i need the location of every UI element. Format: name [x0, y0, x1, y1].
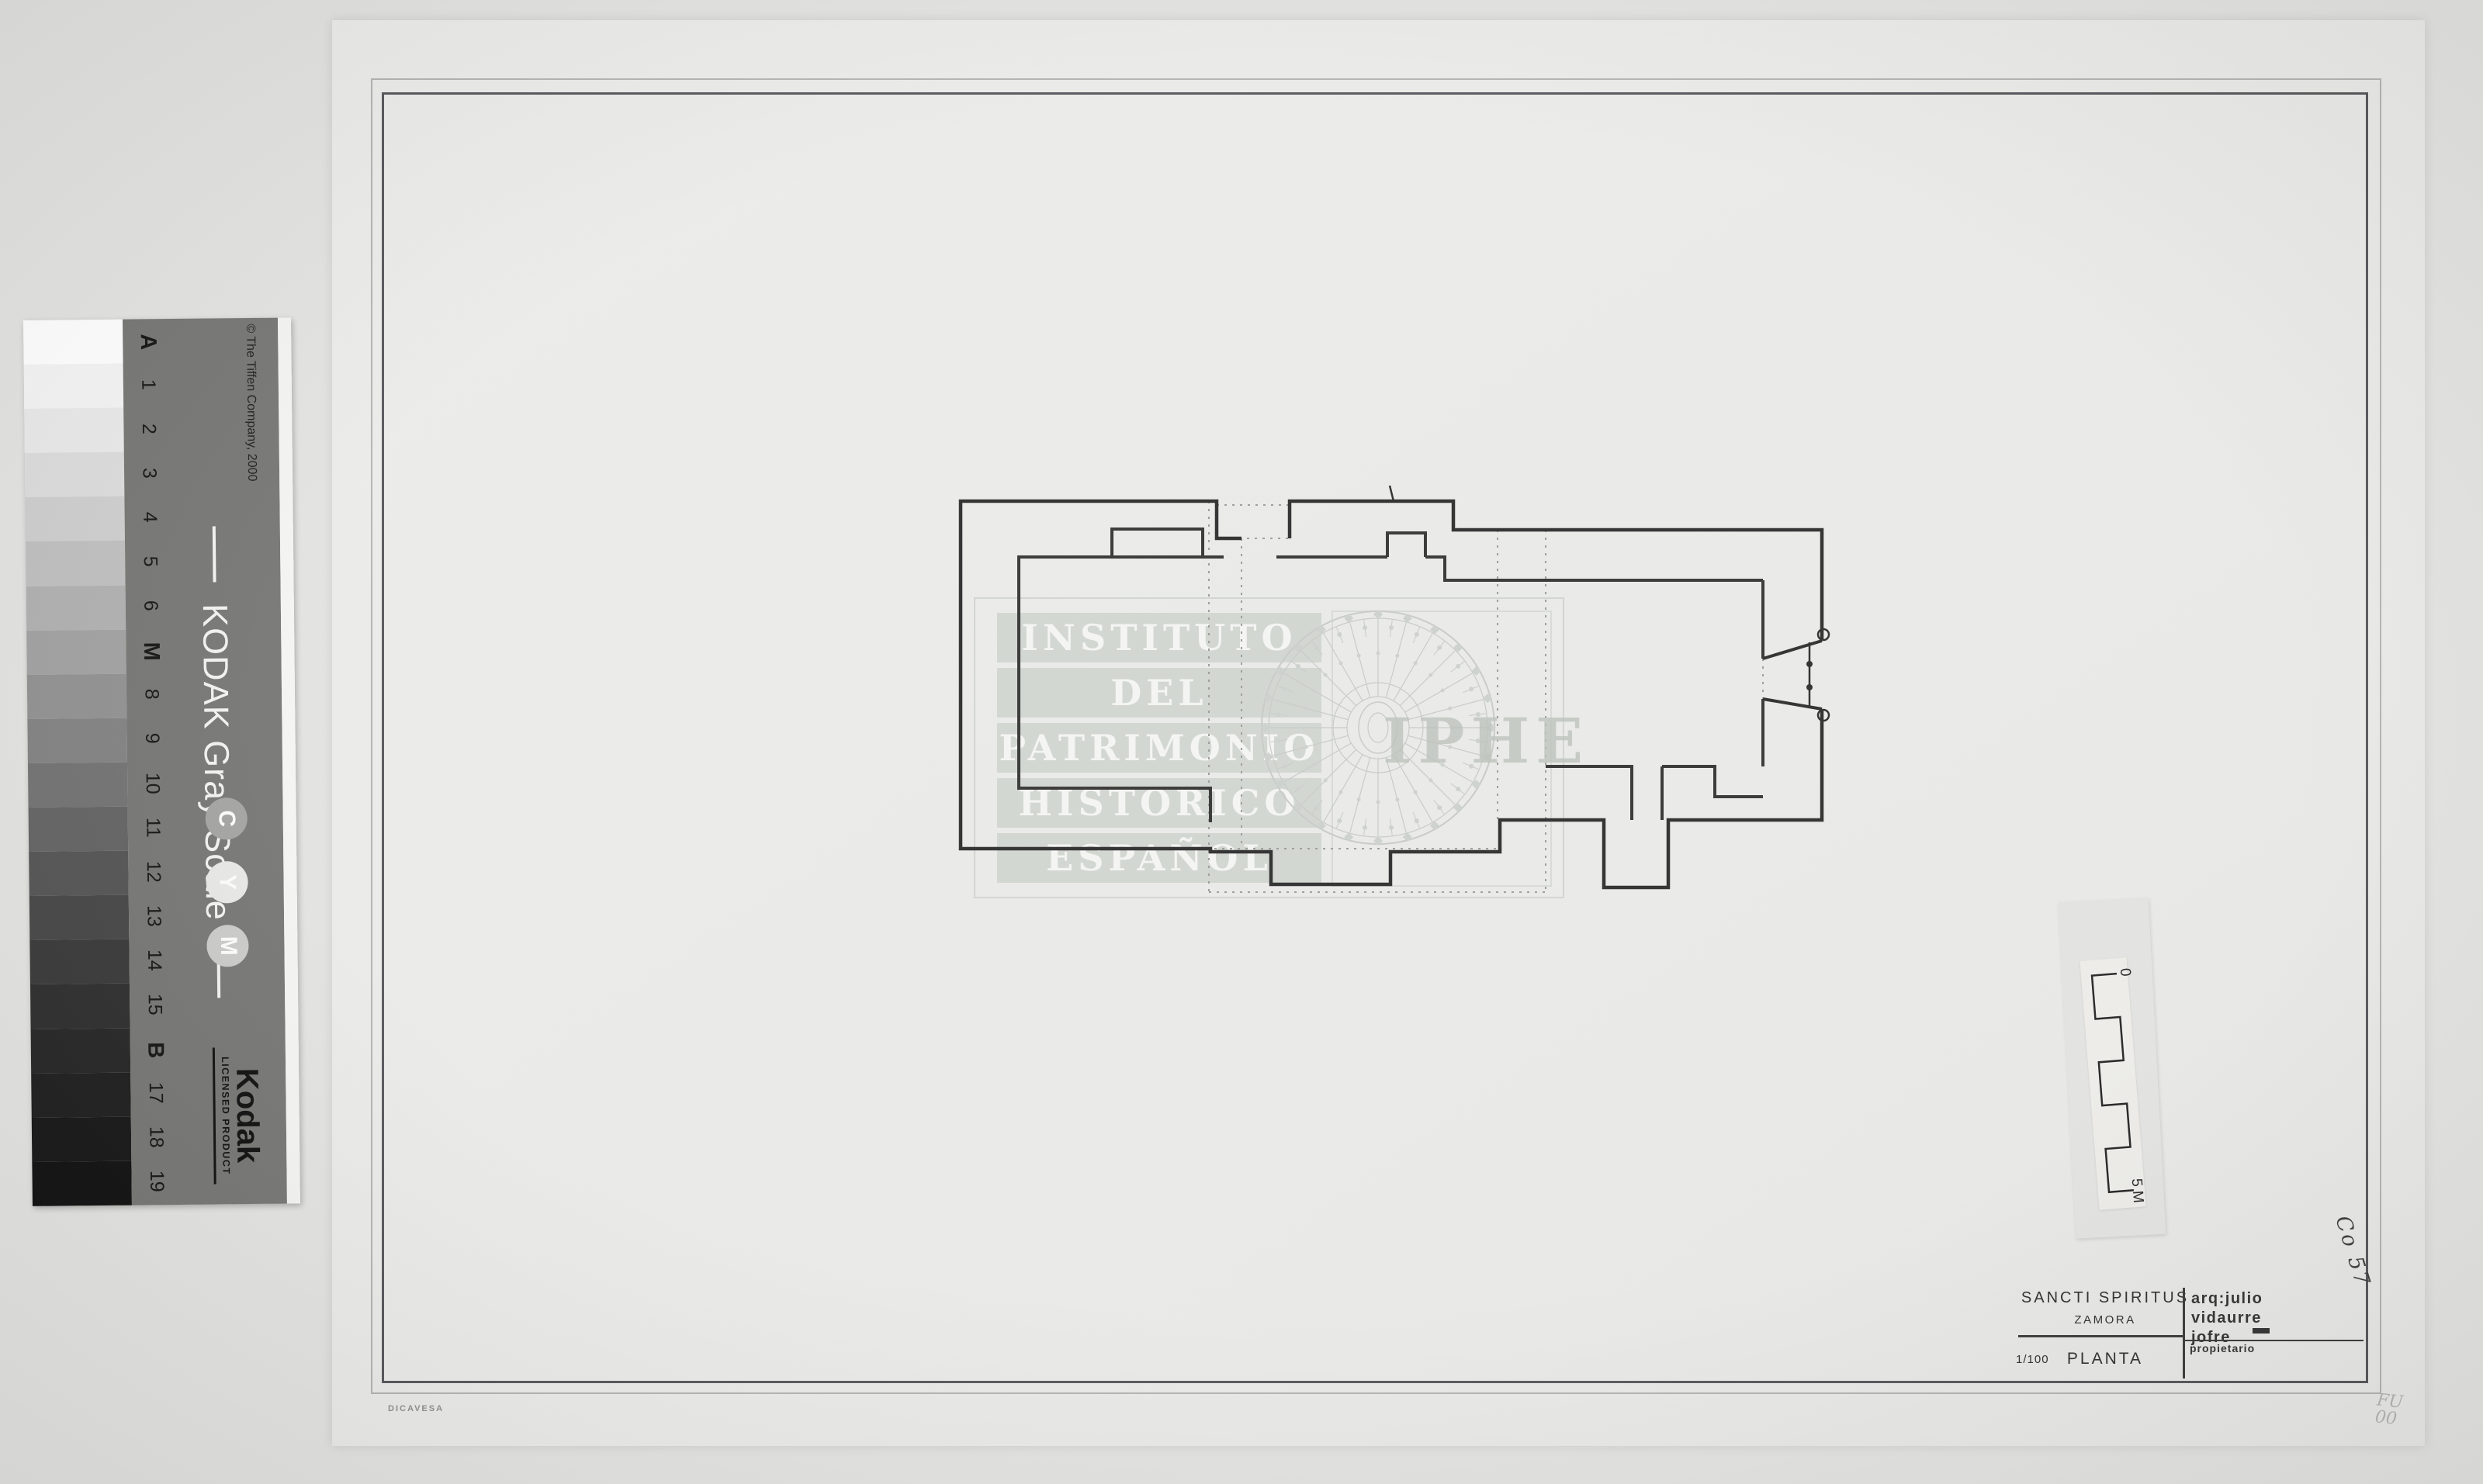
kodak-gray-scale-strip: A123456M89101112131415B171819 KODAK Gray…	[23, 317, 300, 1206]
dome-detail	[1441, 689, 1445, 693]
north-chapel-left	[1112, 529, 1203, 557]
dome-detail	[1415, 818, 1419, 823]
dome-detail	[1302, 726, 1306, 730]
dome-detail	[1414, 790, 1418, 794]
dome-detail	[1276, 780, 1285, 789]
patch-label: 6	[139, 584, 162, 628]
scale-bar-five-m: 5 M	[2128, 1178, 2146, 1203]
patch-label: 17	[144, 1071, 168, 1115]
cym-letter: M	[214, 936, 241, 956]
gray-patch	[26, 585, 126, 630]
dome-detail	[1284, 673, 1352, 712]
gray-patch	[27, 718, 127, 763]
patch-label: M	[138, 630, 164, 673]
patch-label: 13	[142, 894, 165, 937]
dome-detail	[1363, 625, 1367, 630]
architect-line2: vidaurre	[2191, 1309, 2263, 1328]
watermark-acronym: IPHE	[1383, 704, 1589, 777]
dome-detail	[1304, 707, 1308, 711]
dome-detail	[1377, 801, 1380, 804]
gray-patch	[27, 673, 127, 718]
titleblock-vertical-divider	[2183, 1288, 2185, 1378]
dome-detail	[1430, 625, 1439, 635]
dome-detail	[1296, 787, 1300, 791]
dome-detail	[1324, 778, 1328, 782]
dome-detail	[1304, 745, 1308, 749]
titleblock-owner-label: propietario	[2190, 1342, 2255, 1354]
inner-walls	[1019, 529, 1763, 822]
dome-detail	[1337, 632, 1342, 637]
patch-label: 19	[145, 1160, 168, 1203]
dome-detail	[1314, 645, 1319, 650]
dome-detail	[1471, 666, 1480, 676]
dome-detail	[1469, 687, 1474, 691]
dome-detail	[1453, 643, 1463, 652]
dome-detail	[1283, 687, 1287, 691]
patch-label: A	[135, 320, 161, 363]
titleblock-subdivider	[2183, 1340, 2364, 1341]
dome-detail	[1389, 625, 1394, 630]
dome-detail	[1429, 778, 1432, 782]
dome-detail	[1324, 673, 1328, 677]
patch-label: 4	[138, 496, 161, 539]
gray-patch	[26, 629, 126, 674]
patch-label: 2	[137, 406, 161, 450]
gray-patch	[26, 541, 126, 586]
titleblock-divider	[2018, 1335, 2183, 1337]
patch-label: 1	[137, 362, 160, 406]
scale-bar-steps	[2080, 957, 2146, 1210]
gray-patch	[25, 496, 125, 541]
strip-copyright: © The Tiffen Company, 2000	[243, 310, 259, 496]
patch-label: 12	[142, 849, 165, 893]
dome-detail	[1357, 797, 1361, 801]
patch-label: B	[142, 1029, 168, 1072]
gray-patches	[23, 320, 132, 1206]
kodak-logo-text: Kodak	[231, 1047, 264, 1184]
patch-label: 11	[141, 805, 164, 849]
dome-detail	[1339, 661, 1343, 665]
floor-plan-drawing	[0, 0, 2483, 1484]
architect-dash-mark	[2253, 1328, 2270, 1334]
gray-patch	[23, 320, 123, 365]
dome-detail	[1276, 666, 1285, 676]
pencil-note: FU 00	[2374, 1392, 2404, 1428]
dome-detail	[1471, 780, 1480, 789]
gray-patch	[31, 1028, 131, 1073]
dome-detail	[1377, 652, 1380, 656]
gray-patch	[24, 364, 124, 409]
architect-line1: arq:julio	[2191, 1289, 2263, 1309]
dome-detail	[1389, 825, 1394, 830]
gray-patch	[32, 1116, 132, 1161]
dome-detail	[1437, 645, 1442, 650]
dome-detail	[1311, 689, 1315, 693]
inner-top-line	[1276, 557, 1763, 580]
scanned-photo: { "accent_colors": { "paper": "#eaeae8",…	[0, 0, 2483, 1484]
dome-detail	[1456, 787, 1460, 791]
north-chapel-mid	[1387, 533, 1425, 557]
dome-detail	[1276, 712, 1280, 717]
dome-detail	[1284, 743, 1352, 782]
cym-letter: Y	[213, 874, 240, 890]
nave-interior	[1019, 557, 1224, 822]
dome-detail	[1339, 790, 1343, 794]
dome-detail	[1293, 803, 1303, 812]
dome-detail	[1357, 654, 1361, 658]
scale-bar-zero: 0	[2116, 967, 2134, 977]
cym-letter: C	[213, 810, 240, 827]
gray-patch	[30, 984, 130, 1029]
patch-label: 15	[143, 983, 166, 1026]
gray-patch	[29, 807, 129, 852]
gray-patch	[28, 763, 128, 808]
dome-detail	[1400, 651, 1455, 706]
patch-label: 5	[138, 540, 161, 583]
kodak-licensed-text: LICENSED PRODUCT	[219, 1047, 233, 1184]
gray-patch	[24, 408, 124, 453]
titleblock-location: ZAMORA	[1986, 1313, 2224, 1327]
kodak-logo: Kodak LICENSED PRODUCT	[213, 1047, 264, 1185]
patch-label: 8	[140, 673, 163, 716]
dome-detail	[1429, 673, 1432, 677]
dome-detail	[1337, 818, 1342, 823]
patch-label: 10	[140, 761, 164, 804]
cym-circle-c: C	[205, 797, 248, 840]
cym-circle-m: M	[206, 925, 249, 967]
dome-detail	[1317, 625, 1326, 635]
dome-detail	[1394, 634, 1432, 701]
cym-circle-y: Y	[206, 861, 248, 904]
patch-label: 14	[143, 939, 166, 982]
dome-detail	[1301, 651, 1356, 706]
dome-detail	[1276, 739, 1280, 743]
titleblock-title: SANCTI SPIRITUS	[1986, 1289, 2224, 1307]
dome-detail	[1311, 763, 1315, 767]
dome-detail	[1395, 654, 1399, 658]
patch-label: 9	[140, 717, 164, 760]
dome-detail	[1296, 664, 1300, 669]
paper-brand-mark: DICAVESA	[388, 1404, 444, 1413]
dome-detail	[1415, 632, 1419, 637]
dome-detail	[1453, 803, 1463, 812]
gray-patch	[32, 1161, 132, 1206]
dome-detail	[1293, 643, 1303, 652]
dome-detail	[1314, 805, 1319, 810]
patch-label: 3	[137, 451, 161, 495]
scale-bar-strip: 0 5 M	[2059, 898, 2166, 1238]
dome-detail	[1301, 749, 1356, 804]
dome-detail	[1414, 661, 1418, 665]
gray-patch	[29, 851, 129, 896]
gray-patch	[29, 939, 130, 984]
titleblock-architect: arq:julio vidaurre jofre	[2191, 1289, 2263, 1347]
dome-detail	[1283, 764, 1287, 769]
dome-detail	[1430, 821, 1439, 830]
dome-detail	[1324, 634, 1363, 701]
strip-title: KODAK Gray Scale	[192, 401, 241, 1123]
rule-line	[213, 526, 216, 582]
gray-patch	[31, 1072, 131, 1117]
titleblock-drawing-name: PLANTA	[2039, 1350, 2171, 1368]
dome-detail	[1324, 755, 1363, 822]
dome-detail	[1363, 825, 1367, 830]
dome-detail	[1456, 664, 1460, 669]
dome-detail	[1437, 805, 1442, 810]
scale-bar: 0 5 M	[2080, 957, 2146, 1210]
dome-detail	[1395, 797, 1399, 801]
gray-patch	[25, 452, 125, 497]
dome-detail	[1317, 821, 1326, 830]
gray-patch	[29, 895, 130, 940]
patch-label: 18	[144, 1116, 168, 1159]
